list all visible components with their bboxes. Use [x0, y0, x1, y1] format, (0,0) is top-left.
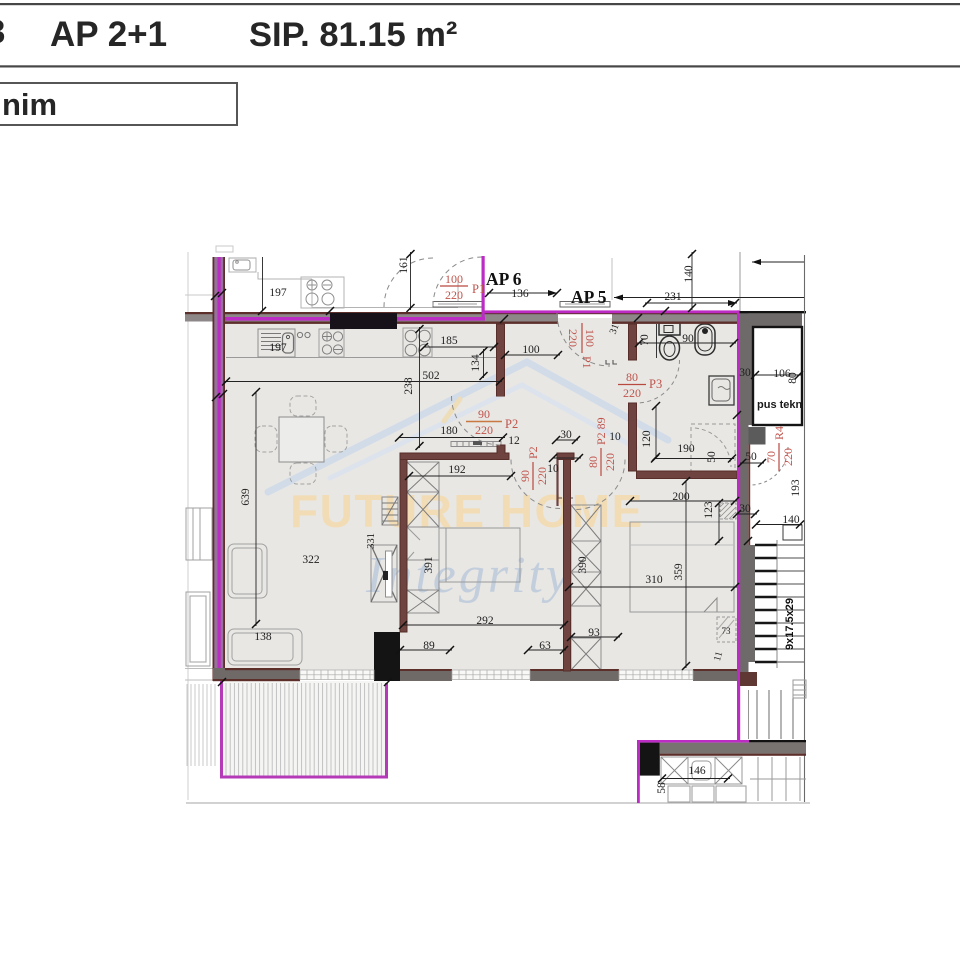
svg-text:P3: P3	[649, 377, 662, 391]
svg-text:10: 10	[609, 431, 621, 443]
svg-text:30: 30	[739, 503, 751, 515]
svg-text:90: 90	[478, 407, 490, 421]
svg-text:AP 2+1: AP 2+1	[50, 15, 167, 54]
svg-text:123: 123	[703, 501, 715, 519]
svg-text:220: 220	[603, 453, 617, 471]
svg-text:9x17.5x29: 9x17.5x29	[784, 598, 796, 650]
svg-text:197: 197	[269, 287, 287, 299]
svg-text:138: 138	[254, 631, 272, 643]
svg-text:50: 50	[745, 451, 757, 463]
svg-text:331: 331	[366, 533, 377, 549]
svg-text:197: 197	[269, 342, 287, 354]
svg-text:136: 136	[511, 288, 529, 300]
svg-text:146: 146	[688, 765, 706, 777]
svg-text:AP 5: AP 5	[571, 287, 607, 307]
svg-text:70: 70	[639, 334, 651, 346]
svg-text:93: 93	[588, 627, 600, 639]
svg-text:231: 231	[664, 291, 682, 303]
svg-text:310: 310	[645, 574, 663, 586]
svg-text:220: 220	[445, 288, 463, 302]
svg-text:140: 140	[683, 265, 695, 283]
svg-text:192: 192	[448, 464, 466, 476]
svg-text:SIP. 81.15 m²: SIP. 81.15 m²	[249, 16, 457, 54]
svg-text:322: 322	[302, 554, 320, 566]
svg-text:10: 10	[547, 463, 559, 475]
svg-text:90: 90	[682, 333, 694, 345]
svg-text:100: 100	[445, 272, 463, 286]
svg-text:70: 70	[764, 451, 778, 463]
svg-text:220: 220	[623, 386, 641, 400]
svg-text:639: 639	[240, 488, 252, 506]
svg-text:190: 190	[677, 443, 695, 455]
svg-text:P2: P2	[505, 417, 518, 431]
svg-text:Integrity: Integrity	[365, 547, 572, 604]
svg-text:140: 140	[782, 514, 800, 526]
svg-text:58: 58	[656, 782, 668, 794]
svg-text:nim: nim	[2, 87, 57, 122]
svg-text:90: 90	[518, 470, 532, 482]
svg-text:185: 185	[440, 335, 458, 347]
svg-text:P1: P1	[472, 282, 485, 296]
svg-text:50: 50	[706, 451, 718, 463]
svg-text:80: 80	[626, 370, 638, 384]
svg-text:100: 100	[522, 344, 540, 356]
svg-text:AP 6: AP 6	[486, 269, 522, 289]
svg-text:80: 80	[586, 456, 600, 468]
svg-text:502: 502	[422, 370, 440, 382]
svg-text:193: 193	[790, 479, 802, 497]
svg-text:120: 120	[641, 430, 653, 448]
svg-text:30: 30	[560, 429, 572, 441]
svg-text:80: 80	[787, 372, 799, 384]
svg-text:P1: P1	[580, 356, 594, 369]
svg-text:12: 12	[508, 435, 520, 447]
svg-text:200: 200	[672, 491, 690, 503]
svg-text:220: 220	[566, 329, 580, 347]
svg-text:220: 220	[781, 448, 795, 466]
svg-text:100: 100	[583, 329, 597, 347]
svg-text:220: 220	[475, 423, 493, 437]
svg-text:180: 180	[440, 425, 458, 437]
svg-text:390: 390	[577, 556, 589, 574]
svg-text:89: 89	[423, 640, 435, 652]
svg-text:3: 3	[0, 13, 5, 50]
svg-text:P2 89: P2 89	[594, 417, 608, 445]
svg-text:359: 359	[673, 563, 685, 581]
svg-text:73: 73	[722, 626, 732, 636]
svg-text:P2: P2	[526, 446, 540, 459]
svg-text:391: 391	[423, 556, 435, 574]
svg-text:238: 238	[403, 377, 415, 395]
svg-text:134: 134	[470, 354, 482, 372]
svg-text:30: 30	[739, 367, 751, 379]
svg-text:63: 63	[539, 640, 551, 652]
svg-text:292: 292	[476, 615, 494, 627]
svg-text:pus tekn: pus tekn	[757, 399, 803, 411]
svg-text:161: 161	[398, 256, 410, 274]
svg-text:R4: R4	[772, 426, 786, 440]
